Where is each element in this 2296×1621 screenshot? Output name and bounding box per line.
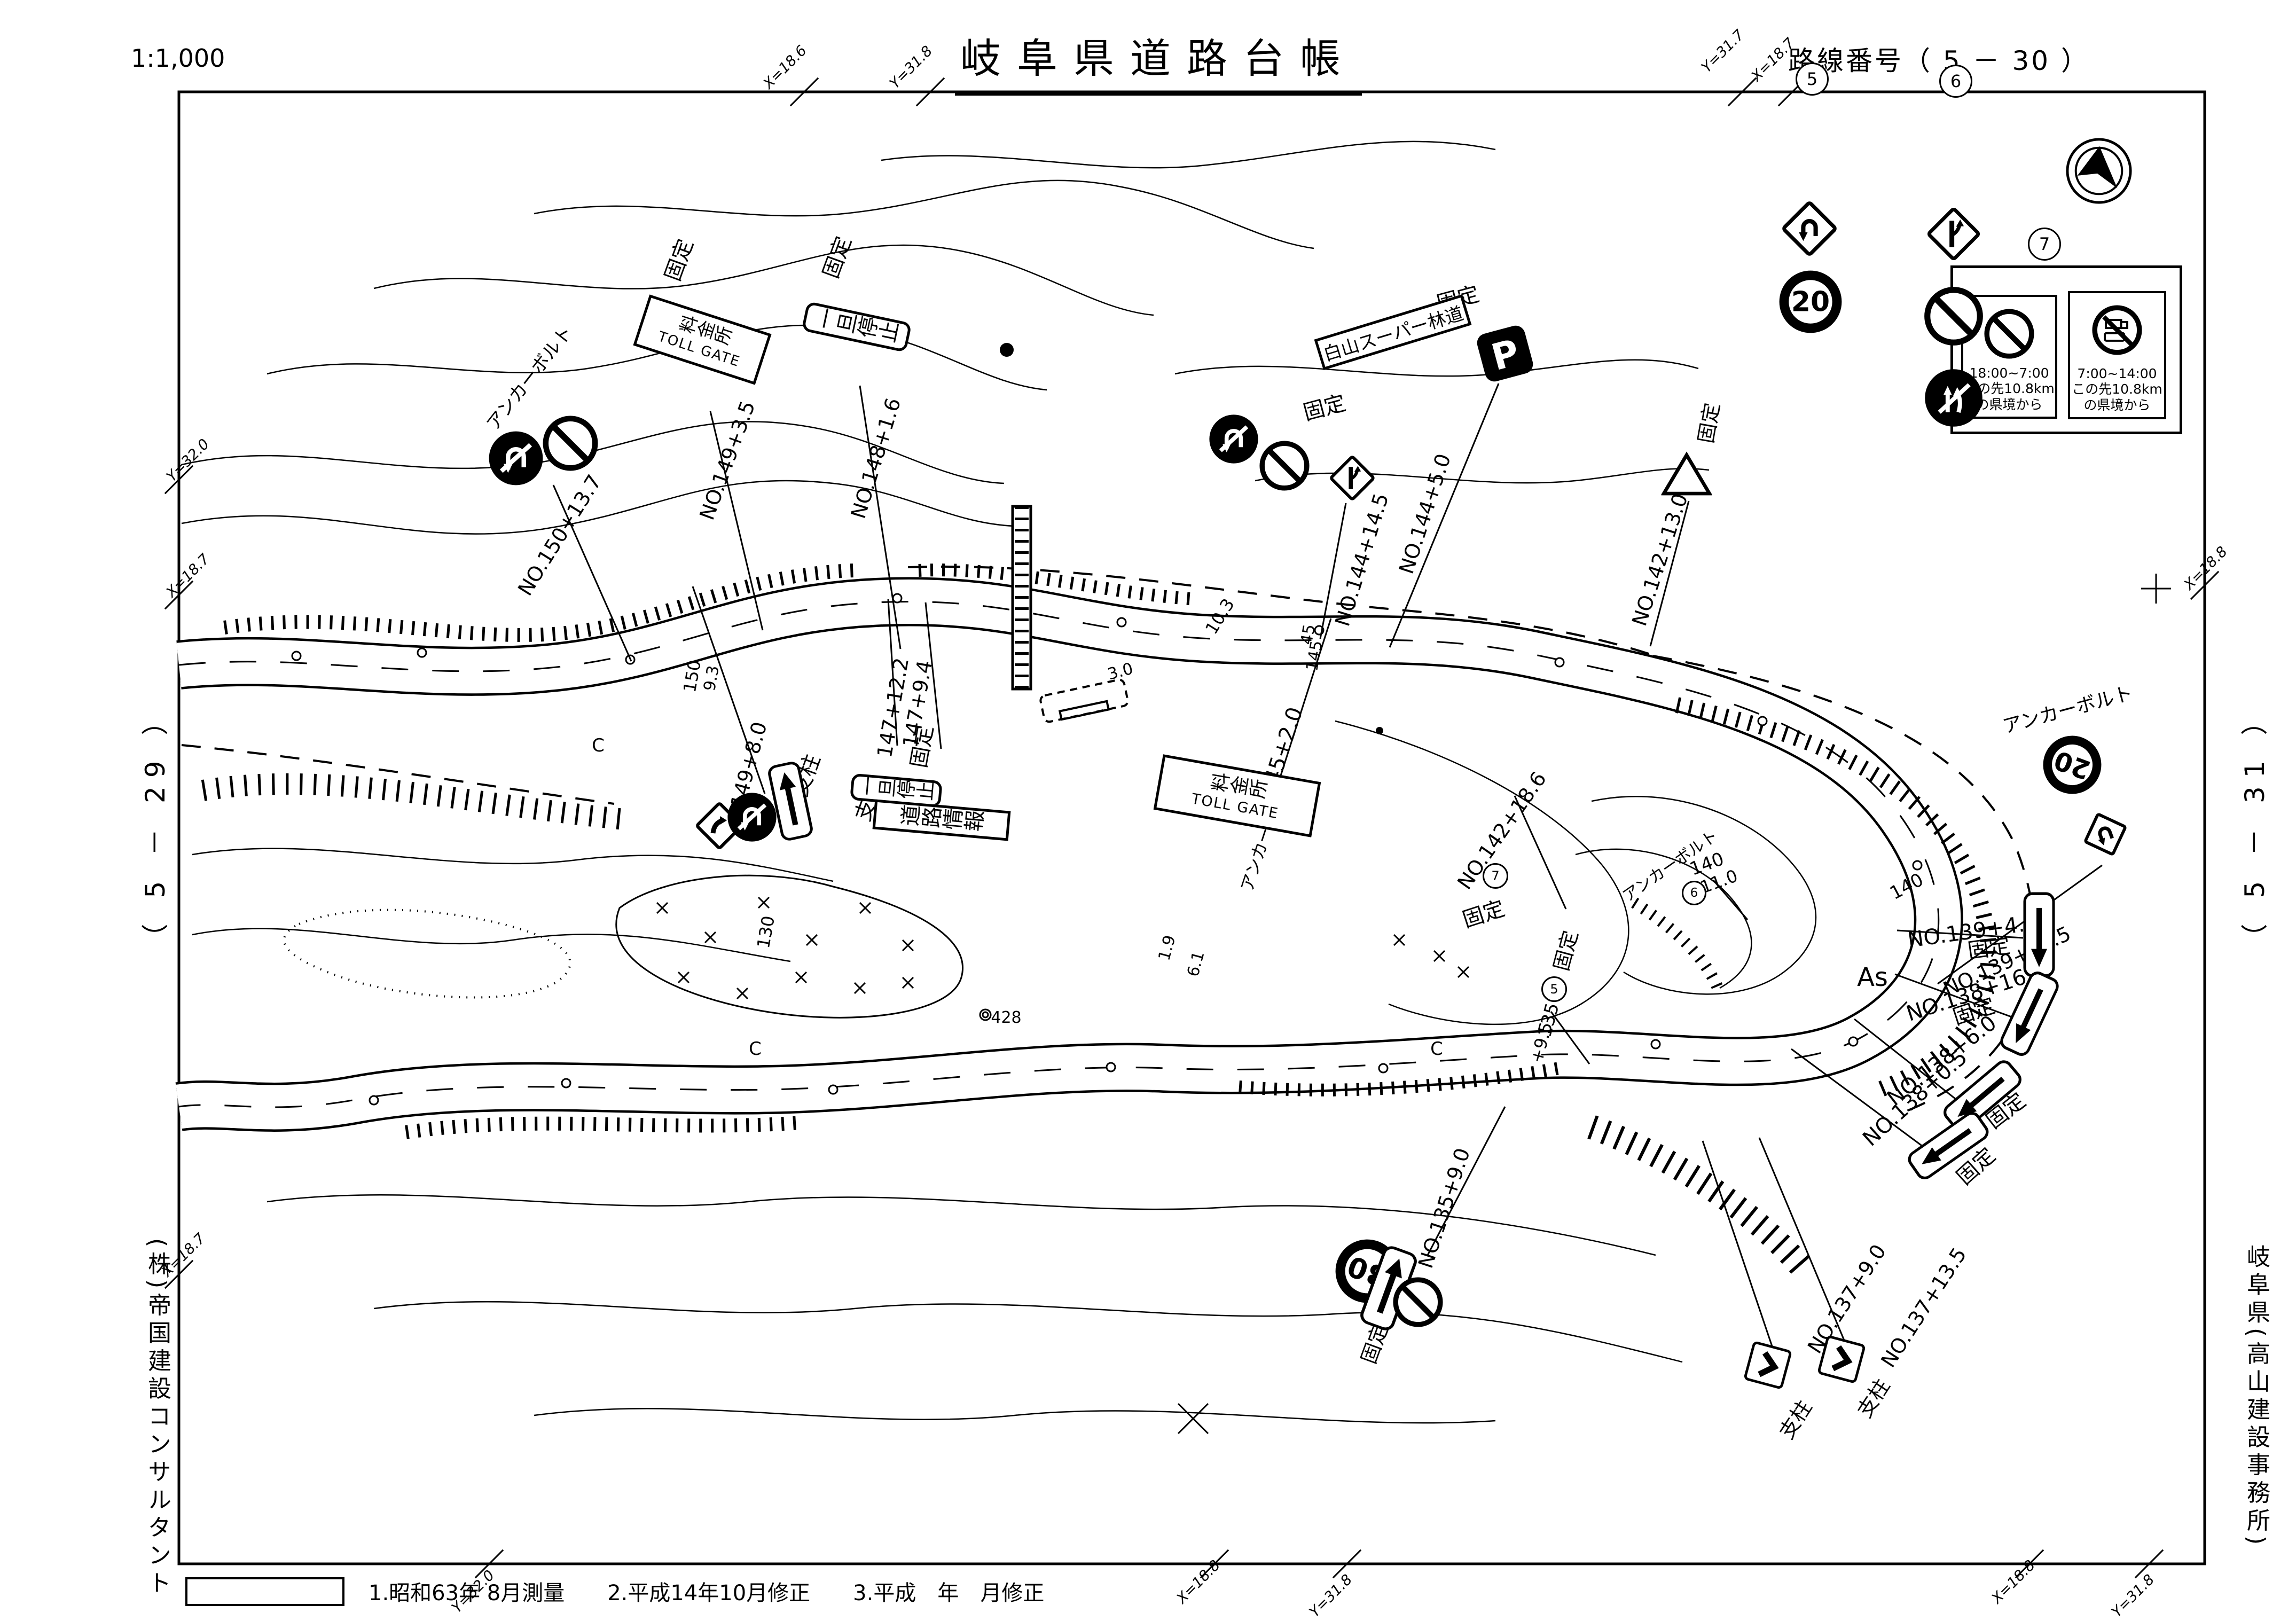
map-label: 130 (755, 914, 777, 950)
map-label: C (1430, 1040, 1443, 1058)
sign-no-uturn-icon (488, 430, 544, 487)
leader-line (1390, 383, 1499, 647)
revision-legend-box (185, 1577, 344, 1606)
sign-prohibit-icon (1924, 286, 1984, 346)
rock-area-outline (616, 875, 963, 1017)
sign-no-uturn-icon (1209, 414, 1259, 465)
north-arrow-icon (2065, 137, 2133, 205)
toll-island (1040, 679, 1129, 723)
sign-prohibit-icon (1393, 1277, 1444, 1328)
sign-speed-icon: 20 (1779, 270, 1842, 333)
gravel-area-outline (284, 910, 570, 998)
culvert-ladder (1000, 343, 1031, 689)
adjacent-sheet-left: （ 5 － 29 ） (134, 700, 173, 950)
circled-number: 5 (1541, 976, 1567, 1002)
map-label: C (592, 737, 605, 755)
sign-no-uturn-icon (727, 792, 778, 843)
sign-no-trucks-icon (2092, 305, 2143, 356)
circled-number: 7 (2028, 228, 2061, 261)
sign-diamond-branch-icon (1327, 453, 1378, 504)
sign-prohibit-icon (1984, 309, 2035, 359)
svg-text:20: 20 (1791, 286, 1830, 318)
scale-label: 1:1,000 (131, 44, 225, 73)
sign-boundary-text: の県境から (2070, 397, 2164, 413)
map-label: 9.3 (702, 664, 722, 692)
managing-office: 岐阜県(高山建設事務所) (2239, 1244, 2273, 1549)
sign-no-overtake-icon (1924, 368, 1984, 428)
page-title: 岐阜県道路台帳 (955, 26, 1362, 96)
sign-time-text: 7:00~14:00 (2070, 366, 2164, 382)
sign-triangle-icon (1662, 449, 1712, 500)
circled-number: 6 (1682, 881, 1706, 905)
surveyor-company: (株)帝国建設コンサルタント (140, 1238, 174, 1598)
circled-number: 7 (1483, 863, 1508, 889)
map-label: 428 (991, 1010, 1021, 1026)
route-number-label: 路線番号（ 5 － 30 ） (1788, 40, 2090, 78)
adjacent-sheet-right: （ 5 － 31 ） (2234, 700, 2272, 950)
sign-arrow-icon (2023, 892, 2055, 977)
contour-lines (182, 142, 1816, 1423)
map-label: C (749, 1040, 762, 1058)
map-label: 固定 (1966, 935, 2012, 962)
grid-cross (1178, 1404, 1208, 1434)
sign-prohibit-icon (1259, 441, 1310, 491)
point-mark (1376, 727, 1383, 734)
sign-diamond-uturn-icon (1778, 198, 1840, 260)
sign-diamond-branch-icon (1924, 204, 1984, 264)
grid-cross (2141, 574, 2171, 604)
board-text: 道路情報 (898, 805, 985, 835)
map-label: As (1857, 965, 1888, 990)
leader-line (1703, 1141, 1780, 1368)
circled-number: 6 (1939, 65, 1972, 98)
circled-number: 5 (1796, 62, 1829, 96)
sign-distance-text: この先10.8km (2070, 381, 2164, 397)
board-text: 一旦停止 (857, 777, 936, 804)
sign-prohibit-icon (543, 416, 599, 472)
road-ledger-sheet: { "header":{ "scale":"1:1,000", "title":… (0, 0, 2296, 1621)
